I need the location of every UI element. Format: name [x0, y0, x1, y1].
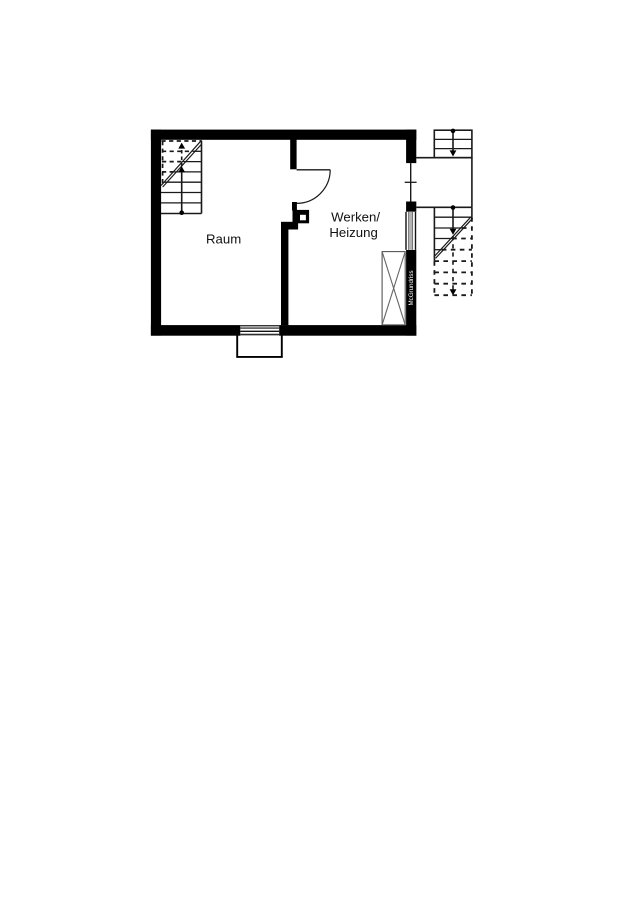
svg-text:Raum: Raum [206, 232, 241, 247]
svg-text:McGrundriss: McGrundriss [408, 270, 415, 305]
svg-text:Heizung: Heizung [329, 225, 377, 240]
svg-text:Werken/: Werken/ [331, 210, 380, 225]
